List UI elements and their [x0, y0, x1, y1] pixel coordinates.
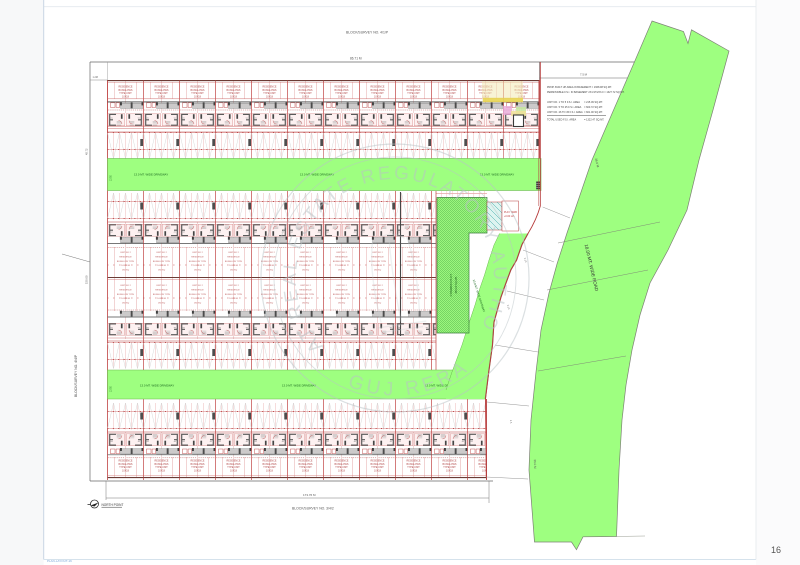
svg-text:UNIT NO. 5 TO 25 F.S.I. AREA: UNIT NO. 5 TO 25 F.S.I. AREA — [547, 106, 582, 109]
svg-text:86.71 M: 86.71 M — [350, 57, 362, 61]
svg-text:PROP. BUILT UP AREA IN BASEMEN: PROP. BUILT UP AREA IN BASEMENT = 1668.9… — [547, 86, 612, 89]
svg-text:16: 16 — [771, 545, 781, 555]
svg-text:13.0 MT. WIDE DRIVEWAY: 13.0 MT. WIDE DRIVEWAY — [480, 173, 514, 177]
svg-text:= 821.00 SQ.MT.: = 821.00 SQ.MT. — [584, 111, 603, 114]
svg-text:150.00: 150.00 — [85, 275, 89, 284]
svg-text:COMMON PLOT: COMMON PLOT — [449, 274, 453, 297]
svg-text:PERMISSIBLE F.S.I. IN BASEMENT: PERMISSIBLE F.S.I. IN BASEMENT 2X1.97/2X… — [547, 91, 625, 94]
svg-text:13.50: 13.50 — [111, 386, 113, 392]
svg-text:= 215.09 SQ.MT.: = 215.09 SQ.MT. — [584, 101, 603, 104]
svg-text:PLAN-LAYOUT-16: PLAN-LAYOUT-16 — [47, 559, 72, 563]
svg-text:13.0 MT. WIDE DRIVEWAY: 13.0 MT. WIDE DRIVEWAY — [300, 173, 334, 177]
svg-text:1.2M: 1.2M — [93, 76, 98, 79]
svg-text:13.0 MT. WIDE DRIVEWAY: 13.0 MT. WIDE DRIVEWAY — [134, 173, 168, 177]
svg-text:BLOCK/SURVEY NO. 4/4/P: BLOCK/SURVEY NO. 4/4/P — [74, 354, 78, 397]
svg-text:UNIT NO. 26 TO 45 F.S.I. AREA: UNIT NO. 26 TO 45 F.S.I. AREA — [547, 111, 583, 114]
svg-text:NORTH POINT: NORTH POINT — [102, 503, 124, 507]
svg-text:173.76 M: 173.76 M — [303, 493, 316, 497]
svg-text:7.5 M: 7.5 M — [580, 73, 588, 77]
svg-text:BLOCK/SURVEY NO. 4/1/P: BLOCK/SURVEY NO. 4/1/P — [346, 31, 389, 35]
svg-text:UNIT NO. 1 TO 5 F.S.I. AREA: UNIT NO. 1 TO 5 F.S.I. AREA — [547, 101, 580, 104]
svg-text:450.00 SQ.MT.: 450.00 SQ.MT. — [454, 276, 458, 294]
svg-text:36.0 M: 36.0 M — [533, 459, 537, 469]
svg-text:TOTAL USED F.S.I. AREA: TOTAL USED F.S.I. AREA — [547, 119, 576, 122]
svg-text:13.50: 13.50 — [111, 175, 113, 181]
svg-text:13.0 MT. WIDE DRIVEWAY: 13.0 MT. WIDE DRIVEWAY — [282, 384, 316, 388]
svg-text:BLOCK/SURVEY NO. 3/4/2: BLOCK/SURVEY NO. 3/4/2 — [292, 507, 334, 511]
svg-text:= 600.72 SQ.MT.: = 600.72 SQ.MT. — [584, 106, 603, 109]
svg-text:13.0 MT. WIDE DRIVEWAY: 13.0 MT. WIDE DRIVEWAY — [140, 384, 174, 388]
svg-text:= 1322.47 SQ.MT.: = 1322.47 SQ.MT. — [584, 119, 605, 122]
svg-text:45.72: 45.72 — [85, 148, 89, 155]
